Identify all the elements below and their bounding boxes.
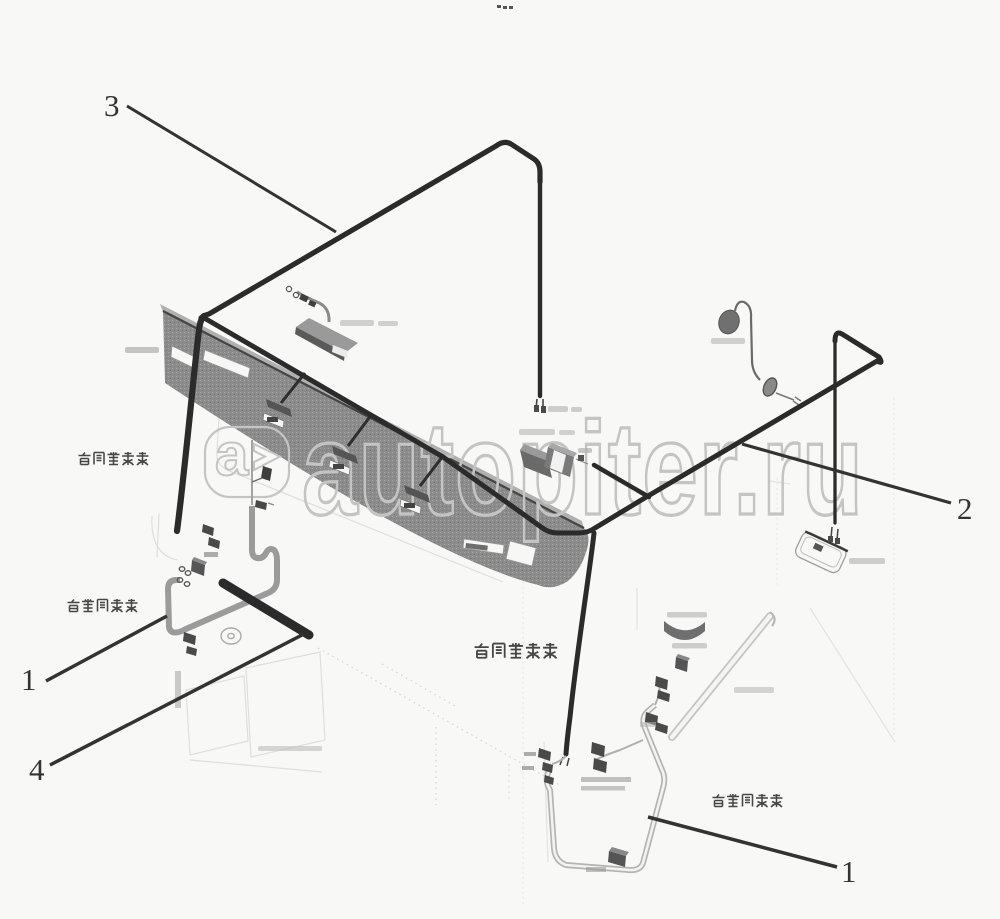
- svg-text:1: 1: [21, 662, 37, 697]
- svg-text:2: 2: [957, 491, 973, 526]
- svg-text:1: 1: [841, 854, 857, 889]
- svg-text:4: 4: [29, 752, 45, 787]
- svg-text:a: a: [215, 421, 249, 488]
- svg-text:3: 3: [104, 88, 120, 123]
